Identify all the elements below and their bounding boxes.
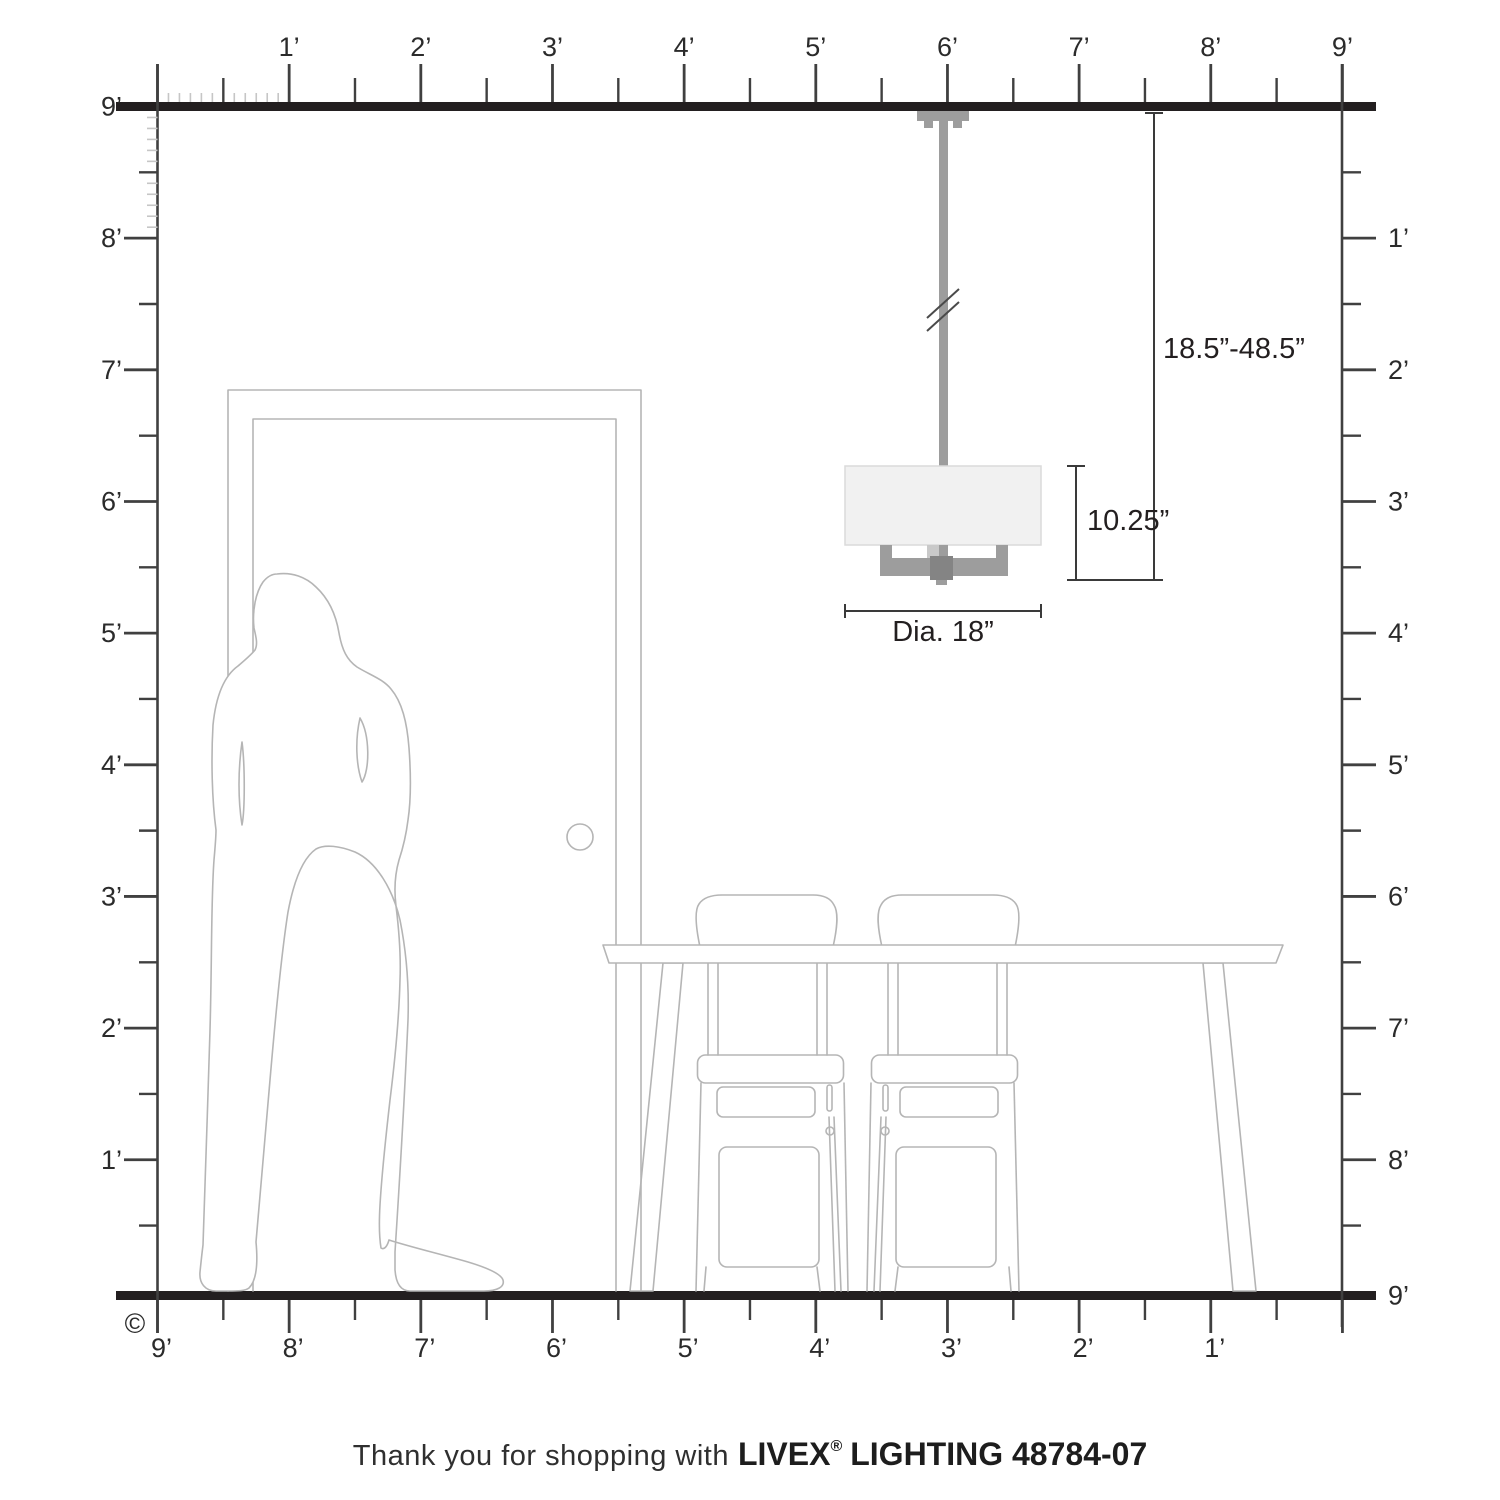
- chair-backrest: [696, 895, 837, 947]
- ruler-label: 6’: [546, 1333, 567, 1363]
- drop-range-label: 18.5”-48.5”: [1163, 333, 1305, 365]
- ruler-label: 4’: [1388, 618, 1409, 648]
- center-finial: [936, 580, 947, 585]
- ceiling-canopy: [917, 111, 969, 121]
- ruler-label: 3’: [941, 1333, 962, 1363]
- ruler-label: 6’: [937, 32, 958, 62]
- woman-outline: [200, 574, 503, 1291]
- chair-back-leg: [696, 1083, 701, 1291]
- footer-caption: Thank you for shopping withLIVEX®LIGHTIN…: [0, 1436, 1500, 1473]
- ruler-label: 2’: [101, 1013, 122, 1043]
- ruler-bottom: 9’8’7’6’5’4’3’2’1’: [151, 1300, 1342, 1363]
- ruler-label: 4’: [809, 1333, 830, 1363]
- door-knob: [567, 824, 593, 850]
- ruler-label: 9’: [1332, 32, 1353, 62]
- ruler-label: 8’: [283, 1333, 304, 1363]
- canopy-tab: [924, 121, 933, 128]
- fixture-height-label: 10.25”: [1087, 505, 1169, 537]
- copyright-mark: ©: [125, 1308, 146, 1339]
- ruler-label: 7’: [1388, 1013, 1409, 1043]
- ruler-label: 5’: [805, 32, 826, 62]
- canopy-tab: [953, 121, 962, 128]
- diameter-label: Dia. 18”: [892, 616, 994, 648]
- ruler-label: 5’: [101, 618, 122, 648]
- ruler-label: 7’: [101, 355, 122, 385]
- table-leg-right: [1203, 963, 1256, 1291]
- ruler-right: 1’2’3’4’5’6’7’8’9’: [1342, 172, 1409, 1310]
- ruler-label: 3’: [542, 32, 563, 62]
- ruler-label: 2’: [410, 32, 431, 62]
- ruler-label: 1’: [1388, 223, 1409, 253]
- brand-name: LIVEX: [738, 1436, 830, 1472]
- ruler-label: 9’: [151, 1333, 172, 1363]
- center-body: [930, 556, 953, 580]
- caption-prefix: Thank you for shopping with: [353, 1440, 729, 1472]
- chair-seat: [698, 1055, 844, 1083]
- ruler-label: 4’: [101, 750, 122, 780]
- pendant-fixture: [845, 111, 1041, 585]
- ruler-top: 1’2’3’4’5’6’7’8’9’: [158, 32, 1353, 102]
- floor-line: [116, 1291, 1376, 1300]
- ruler-label: 1’: [1204, 1333, 1225, 1363]
- ruler-label: 9’: [1388, 1281, 1409, 1311]
- registered-mark: ®: [830, 1438, 842, 1455]
- table-leg-left: [630, 963, 683, 1291]
- ruler-left: 9’8’7’6’5’4’3’2’1’: [101, 92, 158, 1226]
- scale-diagram-canvas: 1’2’3’4’5’6’7’8’9’ 9’8’7’6’5’4’3’2’1’ 1’…: [0, 0, 1500, 1500]
- hanging-rod: [939, 121, 948, 466]
- ruler-label: 6’: [1388, 881, 1409, 911]
- ruler-label: 6’: [101, 486, 122, 516]
- ruler-label: 8’: [1388, 1145, 1409, 1175]
- ruler-label: 4’: [674, 32, 695, 62]
- product-dimension-diagram: 1’2’3’4’5’6’7’8’9’ 9’8’7’6’5’4’3’2’1’ 1’…: [0, 0, 1500, 1500]
- chair-front-leg: [829, 1117, 835, 1291]
- ruler-label: 2’: [1388, 355, 1409, 385]
- ruler-label: 7’: [1069, 32, 1090, 62]
- ruler-label: 9’: [101, 92, 122, 122]
- caption-suffix: LIGHTING 48784-07: [850, 1436, 1147, 1472]
- ruler-label: 8’: [1200, 32, 1221, 62]
- ruler-label: 2’: [1073, 1333, 1094, 1363]
- ruler-label: 3’: [1388, 486, 1409, 516]
- table-top: [603, 945, 1283, 963]
- ruler-label: 5’: [1388, 750, 1409, 780]
- woman-silhouette: [200, 574, 503, 1291]
- ceiling-line: [116, 102, 1376, 111]
- drum-shade: [845, 466, 1041, 545]
- ruler-label: 8’: [101, 223, 122, 253]
- ruler-label: 7’: [414, 1333, 435, 1363]
- ruler-label: 5’: [678, 1333, 699, 1363]
- ruler-label: 1’: [101, 1145, 122, 1175]
- ruler-label: 1’: [279, 32, 300, 62]
- ruler-label: 3’: [101, 881, 122, 911]
- dining-table: [603, 945, 1283, 1291]
